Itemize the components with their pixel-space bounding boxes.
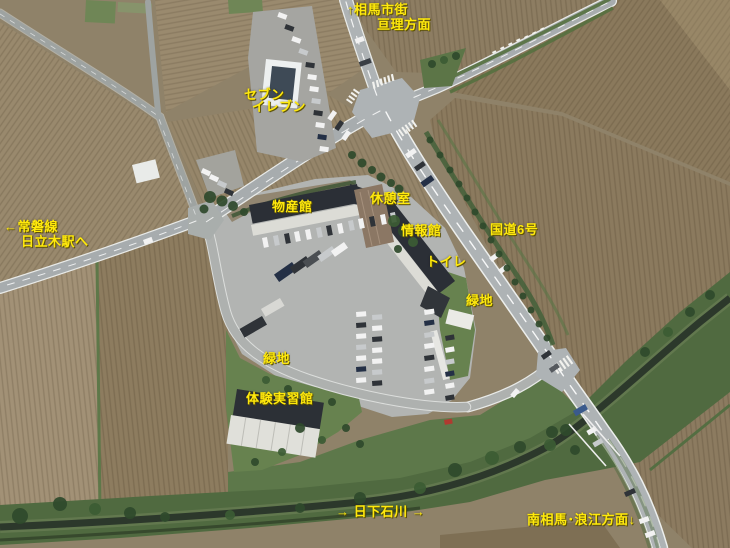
- label-ryokuchi-south: 緑地: [263, 352, 290, 366]
- label-direction-north-soma: ↑相馬市街: [347, 3, 408, 17]
- label-direction-south: 南相馬･浪江方面↓: [527, 513, 636, 527]
- label-kokudo-6-go: 国道6号: [490, 223, 538, 237]
- label-bussankan: 物産館: [272, 200, 313, 214]
- aerial-map: ↑相馬市街 亘理方面 セブン イレブン 物産館 休憩室 情報館 国道6号 トイレ…: [0, 0, 730, 548]
- label-ryokuchi-east: 緑地: [466, 294, 493, 308]
- label-direction-north-watari: 亘理方面: [377, 18, 431, 32]
- label-taiken-jisshukan: 体験実習館: [246, 392, 314, 406]
- satellite-image: [0, 0, 730, 548]
- label-seven-eleven-line2: イレブン: [252, 100, 306, 114]
- label-johokan: 情報館: [401, 224, 442, 238]
- label-toire: トイレ: [426, 255, 467, 269]
- label-joban-line: ←常磐線: [4, 220, 58, 234]
- label-hitachiki-station: 日立木駅へ: [21, 235, 89, 249]
- label-kyukeishitsu: 休憩室: [370, 192, 411, 206]
- label-nikkeishi-river: → 日下石川 →: [336, 505, 425, 519]
